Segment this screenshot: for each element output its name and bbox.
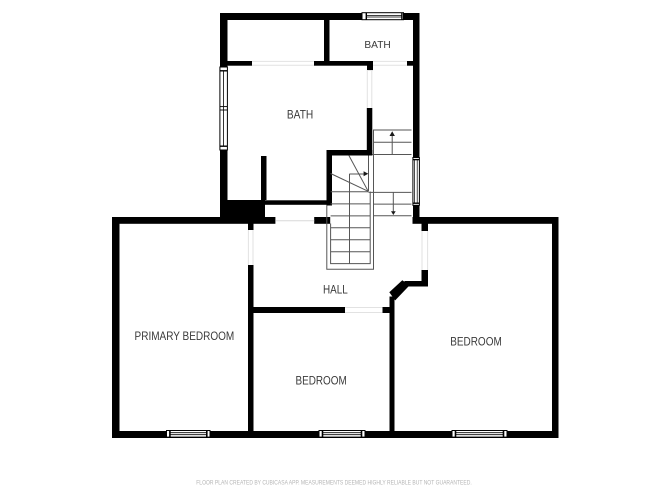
svg-text:HALL: HALL	[323, 285, 348, 297]
svg-text:BEDROOM: BEDROOM	[296, 374, 347, 388]
svg-text:BATH: BATH	[364, 39, 390, 51]
svg-text:FLOOR PLAN CREATED BY CUBICASA: FLOOR PLAN CREATED BY CUBICASA APP. MEAS…	[196, 480, 472, 487]
svg-text:BATH: BATH	[287, 109, 313, 122]
svg-text:PRIMARY BEDROOM: PRIMARY BEDROOM	[135, 329, 235, 343]
svg-text:BEDROOM: BEDROOM	[450, 334, 502, 348]
